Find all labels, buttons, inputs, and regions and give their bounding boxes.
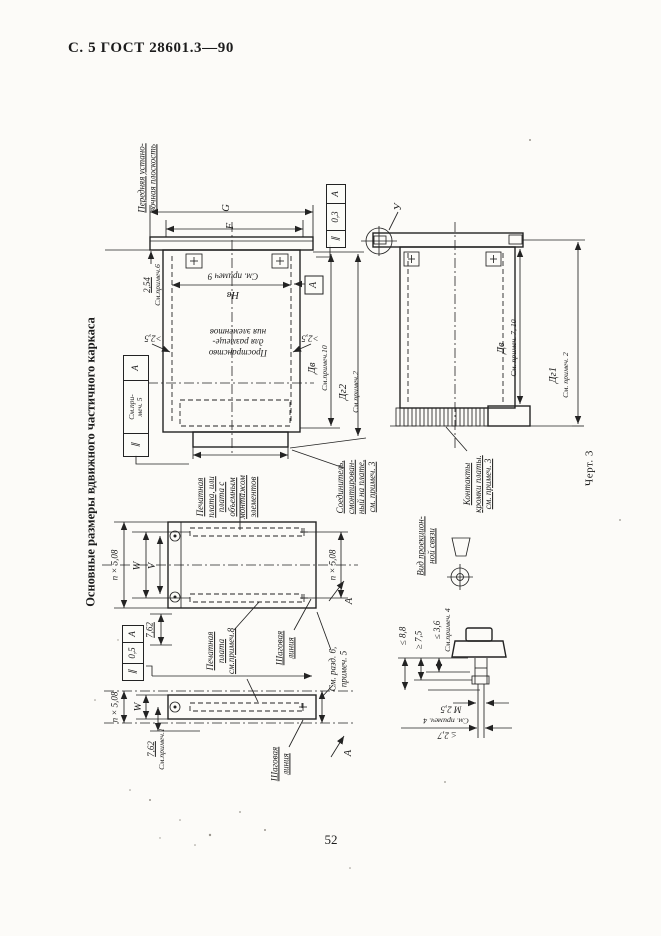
projection-symbol-cone <box>452 538 470 556</box>
dim-36-label: ≤ 3,6См.примеч. 4 <box>411 608 473 652</box>
dim-27-label: ≤ 2,7 <box>438 730 456 741</box>
side-view <box>361 212 585 451</box>
figure-caption: Черт. 3 <box>584 450 597 486</box>
detail-view-u-label: У <box>393 203 405 210</box>
tolerance-symbol: ∥ <box>124 434 148 456</box>
dim-762a-label: 7,62 <box>145 622 156 638</box>
view-arrow-a4-label: А <box>343 750 355 756</box>
pitch-line3-label: Шаговая линия <box>274 631 295 665</box>
pitch-line4-label: Шаговая линия <box>269 747 290 781</box>
dim-hb-label: Нв <box>227 288 239 300</box>
dim-v3-label: V <box>147 563 159 569</box>
pcb-label: Печатная плата, или плата с объемным мон… <box>195 475 259 519</box>
component-space-label: Пространство для размеще- ния элементов <box>209 326 267 358</box>
projection-view-label: Вид проекцион- ной связи <box>415 516 436 575</box>
pitch-left-label: n × 5,08 <box>110 550 121 581</box>
datum-flag-a: А <box>305 276 324 295</box>
tolerance-symbol: ∥ <box>327 231 345 247</box>
scanned-standard-page: С. 5 ГОСТ 28601.3—90 Основные размеры вд… <box>0 0 661 936</box>
dim-f-label: F <box>225 223 237 229</box>
connector-label: Соединитель, смонтирован- ный на плате, … <box>335 460 377 515</box>
dim-88-label: ≤ 8,8 <box>398 627 409 645</box>
view-arrow-a3-label: А <box>344 598 356 604</box>
tolerance-frame-note5: ∥ См.при- меч. 5 А <box>123 355 149 457</box>
dim-w3-label: W <box>132 562 144 571</box>
dim-dg1-label: Дг1См. примеч. 2 <box>527 352 591 398</box>
dim-m25-label: М 2,5 <box>441 704 462 715</box>
dim-w4-label: W <box>133 703 145 712</box>
page-number: 52 <box>325 832 338 848</box>
tolerance-frame-03: ∥ 0,3 А <box>326 184 346 248</box>
gap-left-label: >2,5 <box>144 333 161 344</box>
dim-g-label: G <box>221 204 233 212</box>
page-header: С. 5 ГОСТ 28601.3—90 <box>68 40 234 57</box>
pitch-right-label: n × 5,08 <box>328 550 339 581</box>
edge-contacts-label: Контакты кромки платы. см. примеч. 3 <box>462 455 494 512</box>
tolerance-frame-05: ∥ 0,5 А <box>122 625 144 681</box>
dim-762b-label: 7,62См.примеч.1 <box>125 728 187 770</box>
side-title: Основные размеры вдвижного частичного ка… <box>84 317 99 607</box>
pcb-note8-label: Печатная плата см.примеч.8 <box>205 628 237 674</box>
gap-right-label: >2,5 <box>301 333 318 344</box>
pitch4-label: n × 5,08 <box>110 692 121 723</box>
figure-3-linework <box>0 0 661 936</box>
tolerance-symbol: ∥ <box>123 664 143 680</box>
front-plane-label: Передняя устано- вочная плоскость <box>136 143 157 212</box>
dim-dg2-label: Дг2См.примеч.2 <box>317 371 381 413</box>
dim-27-note: См. примеч. 4 <box>423 716 469 725</box>
dim-254-label: 2,54См.примеч.6 <box>121 264 183 306</box>
see-section-label: См. разд. 6, примеч. 5 <box>327 647 348 691</box>
dim-hb-note: См. примеч 9 <box>208 271 258 282</box>
